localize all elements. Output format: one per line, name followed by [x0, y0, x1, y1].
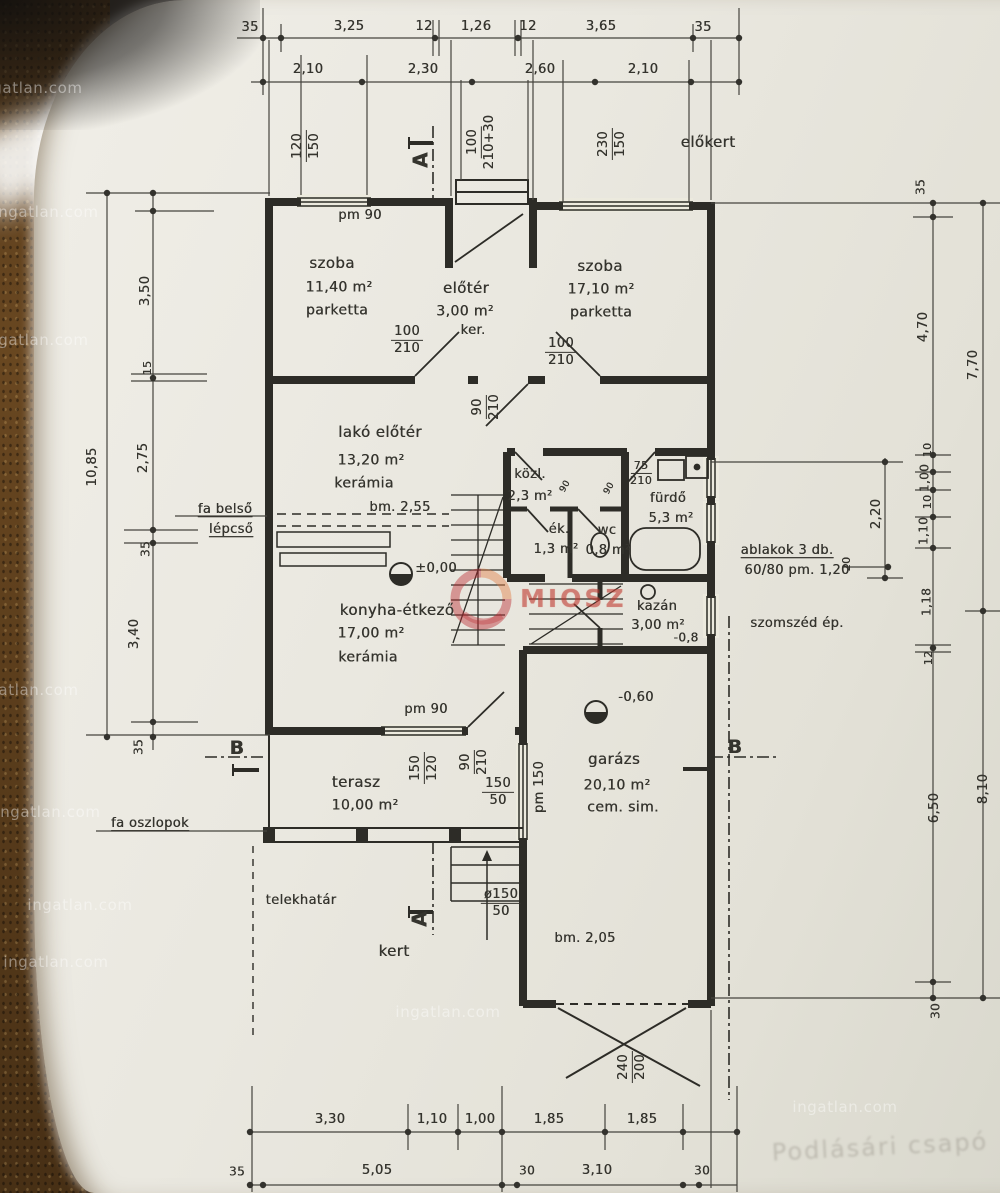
miosz-watermark: MIOSZ [448, 566, 648, 632]
builtin-stair-plan [277, 514, 449, 566]
garage-door [556, 1004, 700, 1086]
miosz-logo-text: MIOSZ [520, 584, 627, 613]
terrace [263, 735, 523, 842]
entrance-porch [456, 180, 528, 204]
garden-steps [451, 847, 523, 940]
miosz-logo-icon [448, 566, 514, 632]
